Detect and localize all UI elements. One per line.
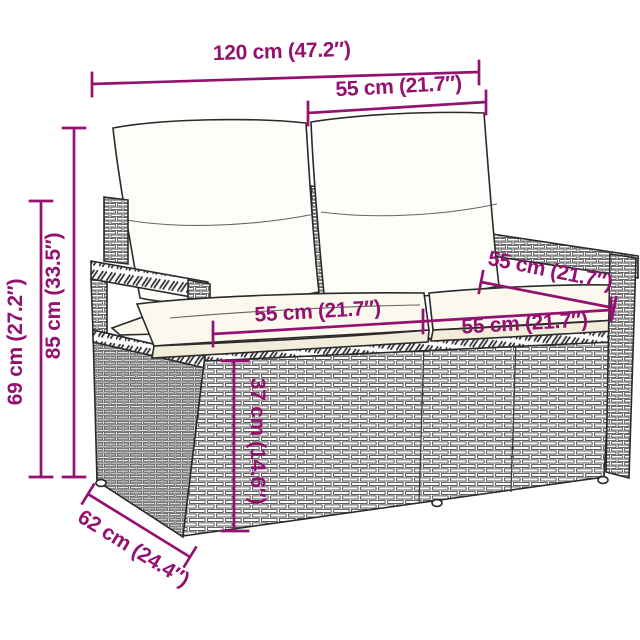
left-armrest-rear-leg: [91, 279, 107, 333]
left-armrest-back-post: [104, 197, 128, 264]
back-cushion-right: [311, 112, 499, 297]
diagram-canvas: 120 cm (47.2″) 55 cm (21.7″) 85 cm (33.5…: [0, 0, 640, 640]
dim-total-height: 85 cm (33.5″): [42, 128, 85, 477]
sofa-foot-center: [432, 500, 442, 507]
dim-overall-width-label: 120 cm (47.2″): [213, 38, 351, 65]
sofa-foot-left: [96, 480, 106, 487]
dim-seat-height-label: 37 cm (14.6″): [246, 378, 269, 504]
sofa-foot-right: [598, 477, 608, 484]
sofa-dimension-diagram: 120 cm (47.2″) 55 cm (21.7″) 85 cm (33.5…: [0, 0, 640, 640]
dim-total-height-label: 85 cm (33.5″): [42, 233, 65, 359]
dim-armrest-height-label: 69 cm (27.2″): [4, 279, 27, 405]
